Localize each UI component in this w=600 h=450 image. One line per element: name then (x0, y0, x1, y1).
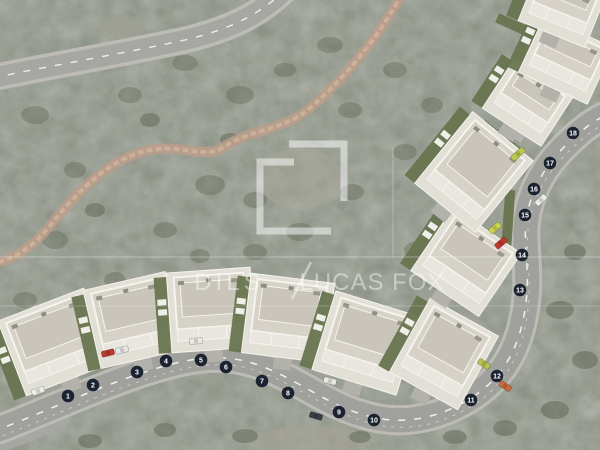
plot-marker-number: 17 (546, 160, 554, 167)
plot-marker-16: 16 (528, 183, 541, 196)
plot-marker-number: 14 (518, 252, 526, 259)
plot-marker-number: 18 (569, 130, 577, 137)
site-plan-scene: 123456789101112131415161718 DILS LUCAS F… (0, 0, 600, 450)
plot-marker-15: 15 (519, 209, 532, 222)
plot-marker-number: 11 (467, 397, 475, 404)
plot-marker-2: 2 (87, 379, 100, 392)
plot-marker-11: 11 (465, 394, 478, 407)
plot-marker-number: 9 (337, 409, 341, 416)
plot-marker-number: 16 (530, 186, 538, 193)
plot-marker-number: 6 (224, 364, 228, 371)
plot-marker-number: 5 (199, 357, 203, 364)
plot-marker-number: 3 (135, 369, 139, 376)
aerial-masterplan-image: 123456789101112131415161718 DILS LUCAS F… (0, 0, 600, 450)
plot-marker-number: 10 (370, 417, 378, 424)
plot-marker-10: 10 (368, 414, 381, 427)
plot-marker-number: 8 (286, 390, 290, 397)
plot-marker-number: 7 (260, 378, 264, 385)
plot-marker-number: 1 (66, 393, 70, 400)
watermark-brand-left: DILS (194, 269, 263, 296)
plot-marker-5: 5 (195, 354, 208, 367)
plot-marker-7: 7 (256, 375, 269, 388)
plot-marker-18: 18 (567, 127, 580, 140)
plot-marker-number: 2 (91, 382, 95, 389)
plot-marker-number: 15 (521, 212, 529, 219)
plot-marker-12: 12 (491, 370, 504, 383)
plot-marker-17: 17 (544, 157, 557, 170)
plot-marker-3: 3 (131, 366, 144, 379)
watermark-brand-right: LUCAS FOX (299, 269, 444, 296)
plot-marker-13: 13 (514, 284, 527, 297)
plot-marker-4: 4 (160, 355, 173, 368)
plot-marker-14: 14 (516, 249, 529, 262)
plot-marker-9: 9 (333, 406, 346, 419)
plot-marker-number: 4 (164, 358, 168, 365)
plot-marker-8: 8 (282, 387, 295, 400)
plot-marker-number: 12 (493, 373, 501, 380)
plot-marker-1: 1 (62, 390, 75, 403)
plot-marker-number: 13 (516, 287, 524, 294)
plot-marker-6: 6 (220, 361, 233, 374)
car (189, 338, 202, 345)
